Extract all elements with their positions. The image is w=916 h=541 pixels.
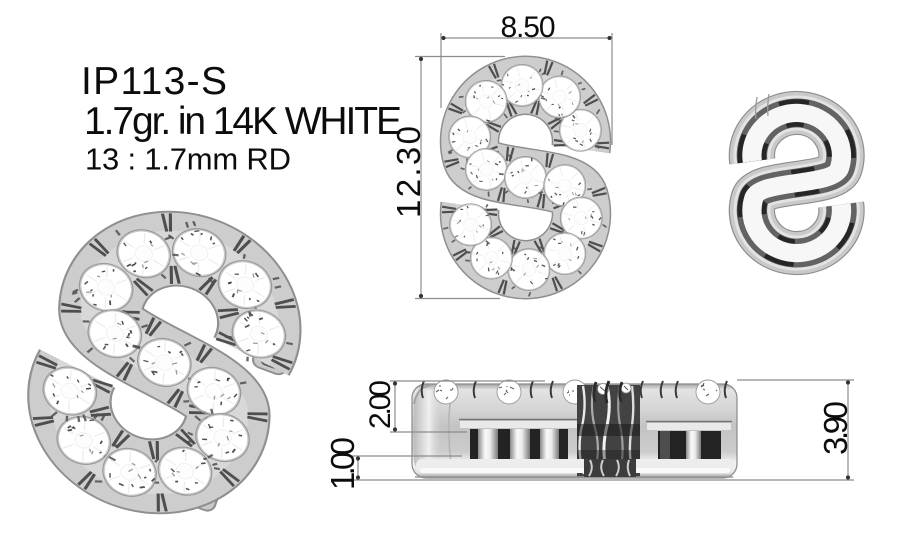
svg-text:1.00: 1.00 (324, 437, 361, 490)
svg-text:IP113-S: IP113-S (81, 60, 227, 103)
svg-text:1.7gr. in 14K WHITE: 1.7gr. in 14K WHITE (84, 100, 402, 143)
svg-text:12.30: 12.30 (390, 126, 427, 218)
svg-text:2.00: 2.00 (364, 380, 397, 429)
svg-text:13 : 1.7mm RD: 13 : 1.7mm RD (85, 142, 291, 177)
svg-text:3.90: 3.90 (817, 401, 854, 455)
svg-text:8.50: 8.50 (501, 11, 556, 44)
